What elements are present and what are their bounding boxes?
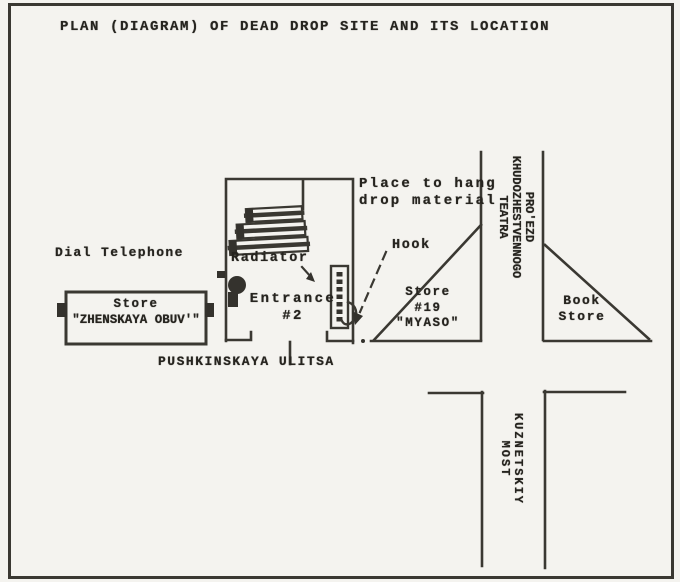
radiator-arrow	[302, 267, 315, 282]
radiator-symbol	[228, 206, 308, 255]
store-obuv-line2: "ZHENSKAYA OBUV'"	[66, 312, 206, 328]
place-to-hang-line2: drop material	[359, 193, 497, 210]
street-kuznetskiy-line2: MOST	[498, 412, 511, 506]
hook-label: Hook	[392, 238, 431, 253]
book-store-label: BookStore	[549, 293, 615, 325]
street-kuznetskiy-label: KUZNETSKIYMOST	[498, 412, 524, 506]
place-to-hang-label: Place to hangdrop material	[359, 176, 497, 210]
entrance-line1: Entrance	[244, 291, 342, 308]
book-store-line1: Book	[549, 293, 615, 309]
dial-telephone-label: Dial Telephone	[55, 245, 184, 260]
street-proezd-line3: TEATRA	[496, 152, 509, 282]
street-proezd-label: PRO'EZDKHUDOZHESTVENNOGOTEATRA	[495, 152, 535, 282]
entrance-line2: #2	[244, 308, 342, 325]
book-store-line2: Store	[549, 309, 615, 325]
radiator-label: Radiator	[231, 251, 309, 266]
store-myaso-line2: #19	[383, 301, 473, 317]
store-obuv-label: Store"ZHENSKAYA OBUV'"	[66, 296, 206, 328]
dead-drop-site-diagram: PLAN (DIAGRAM) OF DEAD DROP SITE AND ITS…	[0, 0, 680, 582]
street-proezd-line1: PRO'EZD	[522, 152, 535, 282]
entrance-label: Entrance#2	[244, 291, 342, 325]
map-dot	[361, 339, 365, 343]
street-proezd-line2: KHUDOZHESTVENNOGO	[509, 152, 522, 282]
hook-arrow	[352, 252, 386, 325]
street-kuznetskiy-lines	[429, 391, 625, 568]
store-myaso-label: Store#19"MYASO"	[383, 285, 473, 332]
store-myaso-line3: "MYASO"	[383, 316, 473, 332]
diagram-title: PLAN (DIAGRAM) OF DEAD DROP SITE AND ITS…	[60, 19, 540, 35]
telephone-symbol	[217, 271, 246, 307]
store-obuv-line1: Store	[66, 296, 206, 312]
street-pushkinskaya-label: PUSHKINSKAYA ULITSA	[158, 354, 335, 369]
store-myaso-line1: Store	[383, 285, 473, 301]
place-to-hang-line1: Place to hang	[359, 176, 497, 193]
street-kuznetskiy-line1: KUZNETSKIY	[511, 412, 524, 506]
